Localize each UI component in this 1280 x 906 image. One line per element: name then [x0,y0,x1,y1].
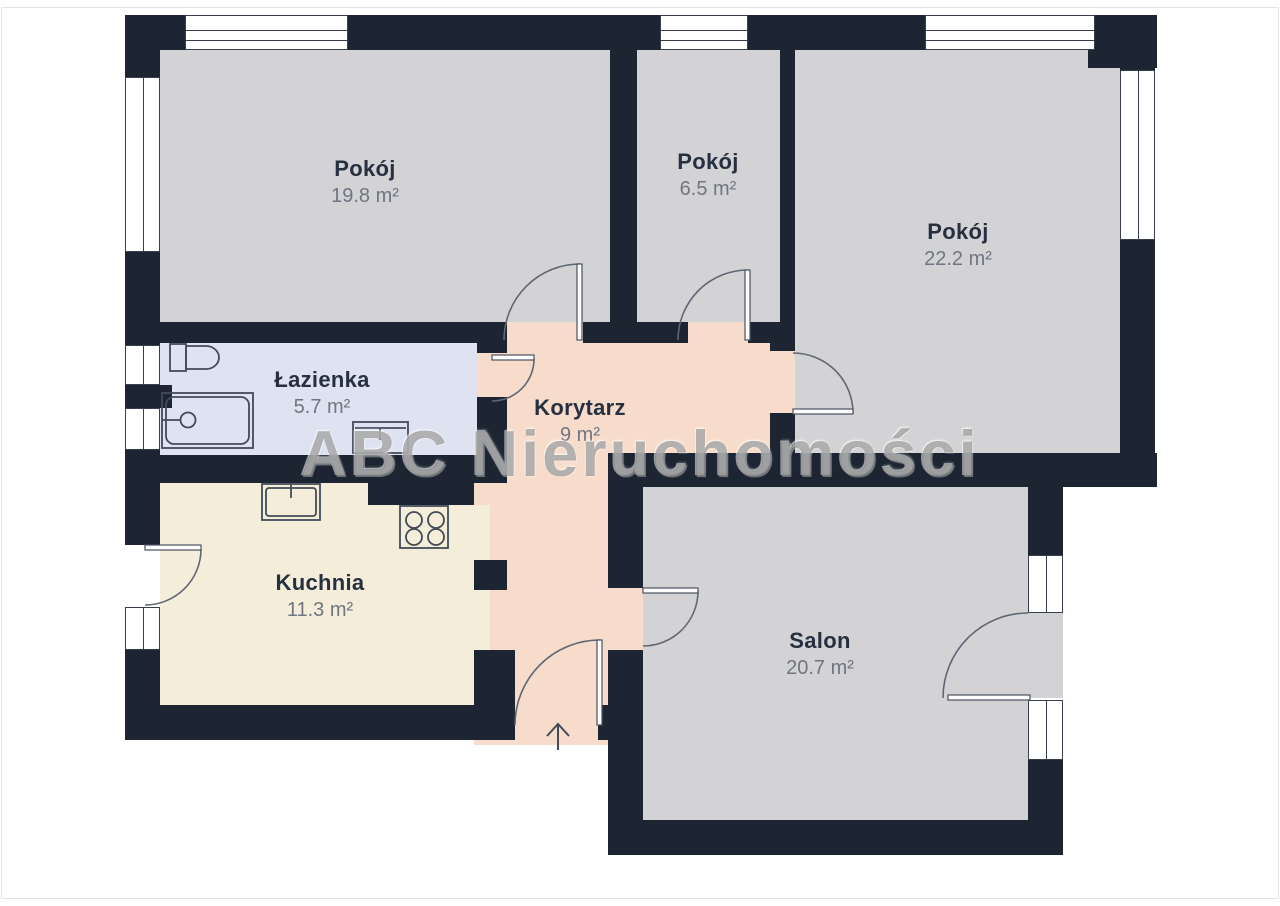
room-area: 20.7 m² [786,657,854,680]
toilet-tank-icon [170,344,186,371]
door-entrance-arc [515,640,600,725]
stove-burner-3-icon [406,529,422,545]
watermark-text: ABC Nieruchomości [300,416,979,491]
floorplan: Pokój 19.8 m² Pokój 6.5 m² Pokój 22.2 m²… [0,0,1280,906]
room-name: Pokój [677,149,738,175]
room-name: Łazienka [274,367,369,393]
door-balcony-leaf [948,695,1030,700]
room-area: 6.5 m² [677,178,738,201]
label-pokoj-3: Pokój 22.2 m² [924,219,992,271]
door-kitchen-ext-leaf [145,545,201,550]
door-pokoj3-leaf [793,409,853,414]
label-pokoj-2: Pokój 6.5 m² [677,149,738,201]
room-name: Pokój [924,219,992,245]
label-kuchnia: Kuchnia 11.3 m² [276,570,365,622]
door-salon-arc [643,591,698,646]
toilet-bowl-icon [186,346,219,369]
room-name: Pokój [331,156,399,182]
label-salon: Salon 20.7 m² [786,628,854,680]
room-name: Salon [786,628,854,654]
entrance-arrow-icon [547,724,569,750]
door-pokoj1-arc [504,264,580,340]
door-salon-leaf [643,588,698,593]
room-area: 22.2 m² [924,248,992,271]
door-pokoj3-arc [793,353,853,413]
stove-burner-1-icon [406,512,422,528]
door-lazienka-leaf [492,355,534,360]
door-pokoj1-leaf [577,264,582,340]
door-entrance-leaf [597,640,602,725]
door-balcony-arc [943,613,1028,698]
room-area: 11.3 m² [276,599,365,622]
door-pokoj2-arc [678,270,748,340]
door-pokoj2-leaf [745,270,750,340]
stove-burner-4-icon [428,529,444,545]
bathtub-drain-icon [181,413,196,428]
door-lazienka-arc [492,359,534,401]
door-kitchen-ext-arc [145,549,201,605]
label-lazienka: Łazienka 5.7 m² [274,367,369,419]
label-pokoj-1: Pokój 19.8 m² [331,156,399,208]
stove-burner-2-icon [428,512,444,528]
room-area: 19.8 m² [331,185,399,208]
room-name: Kuchnia [276,570,365,596]
